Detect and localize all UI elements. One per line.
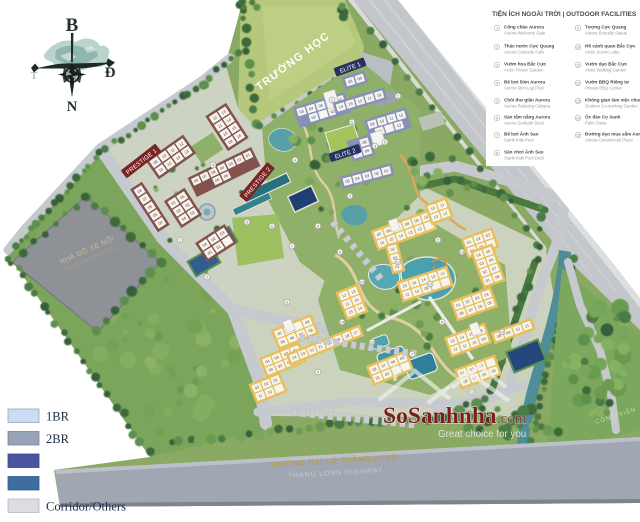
svg-text:Arctic Scenic Lake: Arctic Scenic Lake — [585, 50, 620, 55]
svg-text:13: 13 — [576, 100, 580, 104]
svg-text:Aurora Sunbath Deck: Aurora Sunbath Deck — [504, 121, 545, 126]
svg-text:Starlit Kids Pool: Starlit Kids Pool — [504, 138, 534, 143]
svg-text:5: 5 — [496, 100, 498, 104]
svg-text:TIỆN ÍCH NGOÀI TRỜI | OUTDOOR: TIỆN ÍCH NGOÀI TRỜI | OUTDOOR FACILITIES — [492, 9, 637, 18]
svg-text:Chòi thư giãn Aurora: Chòi thư giãn Aurora — [504, 98, 550, 103]
svg-text:Tượng Cực Quang: Tượng Cực Quang — [585, 25, 627, 30]
svg-text:10: 10 — [500, 330, 505, 335]
svg-text:2BR: 2BR — [46, 432, 70, 446]
svg-text:Bể bơi 50m Aurora: Bể bơi 50m Aurora — [504, 79, 546, 85]
svg-text:Vườn hoa Bắc Cực: Vườn hoa Bắc Cực — [504, 61, 547, 67]
svg-text:Palm Oasis: Palm Oasis — [585, 121, 606, 126]
svg-text:Aurora Relaxing Cabana: Aurora Relaxing Cabana — [504, 104, 551, 109]
svg-text:Arctic Flower Garden: Arctic Flower Garden — [504, 68, 544, 73]
svg-text:14: 14 — [576, 117, 580, 121]
svg-text:Aurora Commercial Plaza: Aurora Commercial Plaza — [585, 138, 633, 143]
svg-text:3: 3 — [496, 64, 498, 68]
svg-text:Aurora Welcome Gate: Aurora Welcome Gate — [504, 31, 546, 36]
svg-text:6: 6 — [496, 117, 498, 121]
svg-text:Hồ cảnh quan Bắc Cực: Hồ cảnh quan Bắc Cực — [585, 43, 636, 49]
svg-text:4: 4 — [496, 82, 498, 86]
svg-text:Aurora Cascade Falls: Aurora Cascade Falls — [504, 50, 544, 55]
svg-text:Great choice for you: Great choice for you — [438, 429, 526, 440]
svg-text:2: 2 — [496, 46, 498, 50]
svg-text:14: 14 — [340, 320, 345, 325]
svg-text:11: 11 — [576, 64, 580, 68]
svg-text:T: T — [31, 70, 38, 82]
svg-text:Arctic Walking Garden: Arctic Walking Garden — [585, 68, 627, 73]
svg-text:Sân chơi Ánh Sao: Sân chơi Ánh Sao — [504, 149, 544, 155]
svg-text:Đ: Đ — [105, 65, 116, 81]
svg-text:Ốc đảo Cọ Xanh: Ốc đảo Cọ Xanh — [585, 114, 621, 120]
svg-text:Không gian làm việc chung ngoà: Không gian làm việc chung ngoài — [585, 98, 640, 103]
svg-text:Vườn dạo Bắc Cực: Vườn dạo Bắc Cực — [585, 61, 628, 67]
svg-text:7: 7 — [496, 134, 498, 138]
svg-text:Sàn tắm nắng Aurora: Sàn tắm nắng Aurora — [504, 114, 551, 120]
svg-text:Private BBQ Corner: Private BBQ Corner — [585, 86, 623, 91]
svg-text:N: N — [67, 99, 78, 115]
svg-text:Outdoor Co-working Garden: Outdoor Co-working Garden — [585, 104, 638, 109]
svg-text:10: 10 — [576, 46, 580, 50]
svg-text:12: 12 — [428, 282, 433, 287]
svg-text:1BR: 1BR — [46, 410, 70, 424]
svg-text:8: 8 — [496, 152, 498, 156]
svg-text:SoSanhnha: SoSanhnha — [383, 403, 497, 429]
svg-text:13: 13 — [460, 250, 465, 255]
svg-text:Corridor/Others: Corridor/Others — [46, 500, 126, 514]
svg-text:Aurora Borealis Statue: Aurora Borealis Statue — [585, 31, 628, 36]
svg-text:Vườn BBQ Riêng tư: Vườn BBQ Riêng tư — [585, 80, 630, 85]
svg-text:15: 15 — [576, 134, 580, 138]
svg-text:.com: .com — [497, 411, 527, 427]
svg-text:B: B — [66, 15, 79, 36]
svg-text:15: 15 — [370, 340, 375, 345]
svg-text:Đường dạo mua sắm Aurora: Đường dạo mua sắm Aurora — [585, 131, 640, 137]
svg-text:9: 9 — [577, 27, 579, 31]
svg-text:1: 1 — [496, 27, 498, 31]
svg-text:Cổng chào Aurora: Cổng chào Aurora — [504, 24, 544, 30]
svg-text:Thác nước Cực Quang: Thác nước Cực Quang — [504, 44, 554, 49]
svg-text:Starlit Kids Pool Deck: Starlit Kids Pool Deck — [504, 156, 545, 161]
svg-text:10: 10 — [360, 280, 365, 285]
svg-text:Bể bơi Ánh Sao: Bể bơi Ánh Sao — [504, 131, 539, 137]
svg-text:12: 12 — [576, 82, 580, 86]
svg-text:Aurora 50m Lap Pool: Aurora 50m Lap Pool — [504, 86, 544, 91]
